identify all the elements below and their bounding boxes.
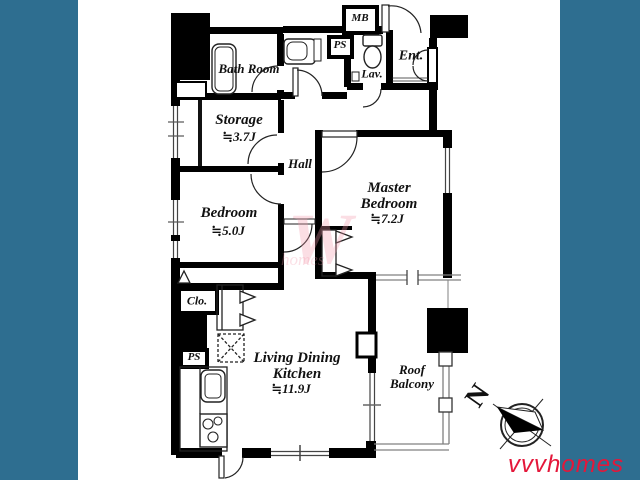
washroom-door-arc <box>297 70 322 96</box>
brand-watermark: vvvhomes <box>508 451 638 479</box>
entrance-door-leaf <box>382 5 389 32</box>
master-door-arc <box>322 137 357 172</box>
washroom-door-leaf <box>293 68 298 96</box>
room-area-storage: ≒3.7J <box>222 130 256 144</box>
compass <box>493 399 551 449</box>
balcony-railing <box>374 270 461 450</box>
room-label-storage: Storage <box>215 113 263 129</box>
room-area-bedroom: ≒5.0J <box>211 224 245 238</box>
room-area-ldk: ≒11.9J <box>271 382 310 396</box>
label-ps-bottom: PS <box>188 352 201 364</box>
balcony-door-leaf <box>219 456 224 478</box>
balcony-door-arc <box>225 457 243 478</box>
toilet-bowl <box>364 46 381 68</box>
watermark-word: homes <box>281 250 324 270</box>
page-frame: Bath Room Storage ≒3.7J Hall Bedroom ≒5.… <box>0 0 640 480</box>
room-area-master: ≒7.2J <box>370 212 404 226</box>
entrance-door-arc <box>388 6 421 33</box>
label-clo: Clo. <box>187 295 207 308</box>
room-label-hall: Hall <box>288 157 312 171</box>
lav-door-arc <box>363 89 381 107</box>
shoe-cabinet <box>428 48 437 83</box>
toilet-tank <box>363 35 382 46</box>
label-ps-top: PS <box>334 40 347 52</box>
shoe-cabinet-door <box>413 66 428 81</box>
label-mb: MB <box>351 13 368 25</box>
label-ent: Ent. <box>399 50 424 65</box>
bedroom-door-arc <box>251 174 281 204</box>
master-door-leaf <box>322 131 357 137</box>
room-label-bedroom: Bedroom <box>201 206 258 222</box>
room-label-master: Master Bedroom <box>349 181 429 213</box>
room-label-ldk: Living Dining Kitchen <box>241 351 353 383</box>
room-label-roof-balcony: Roof Balcony <box>377 363 447 391</box>
room-label-bath: Bath Room <box>218 62 280 76</box>
label-lav: Lav. <box>361 68 382 81</box>
